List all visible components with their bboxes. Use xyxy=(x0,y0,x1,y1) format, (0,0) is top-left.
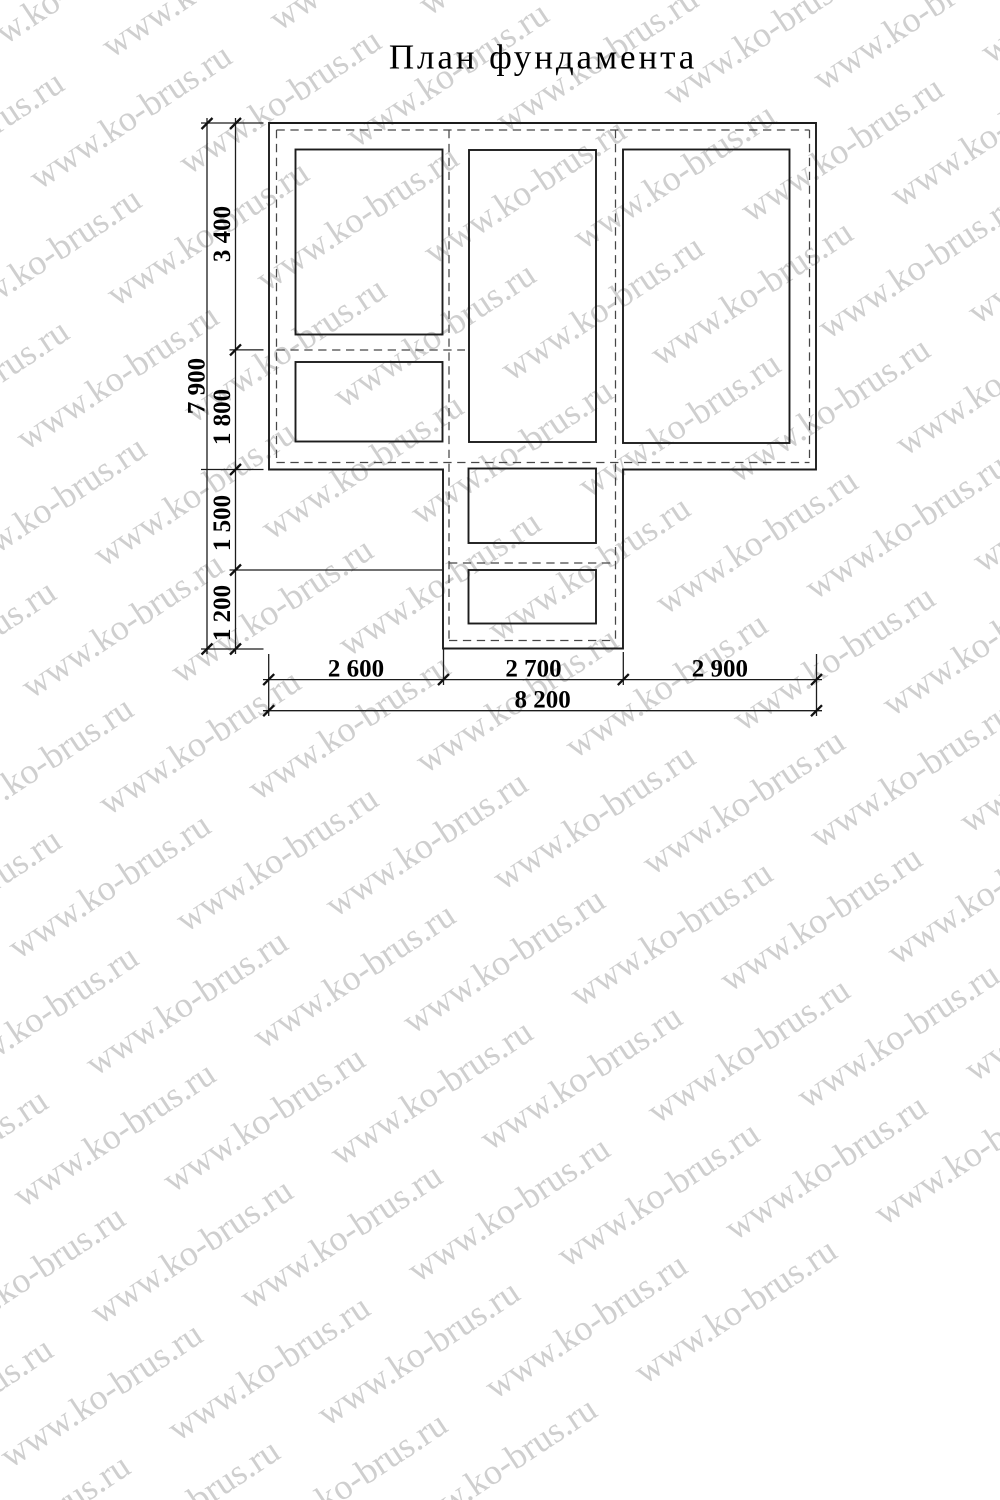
svg-text:1 200: 1 200 xyxy=(209,585,236,641)
svg-text:8 200: 8 200 xyxy=(514,687,570,714)
svg-text:2 600: 2 600 xyxy=(328,655,384,682)
svg-text:3 400: 3 400 xyxy=(209,206,236,262)
svg-text:План фундамента: План фундамента xyxy=(389,38,697,77)
svg-text:2 900: 2 900 xyxy=(692,655,748,682)
svg-text:1 800: 1 800 xyxy=(209,389,236,445)
svg-text:7 900: 7 900 xyxy=(184,358,211,414)
svg-text:1 500: 1 500 xyxy=(209,495,236,551)
svg-text:2 700: 2 700 xyxy=(505,655,561,682)
